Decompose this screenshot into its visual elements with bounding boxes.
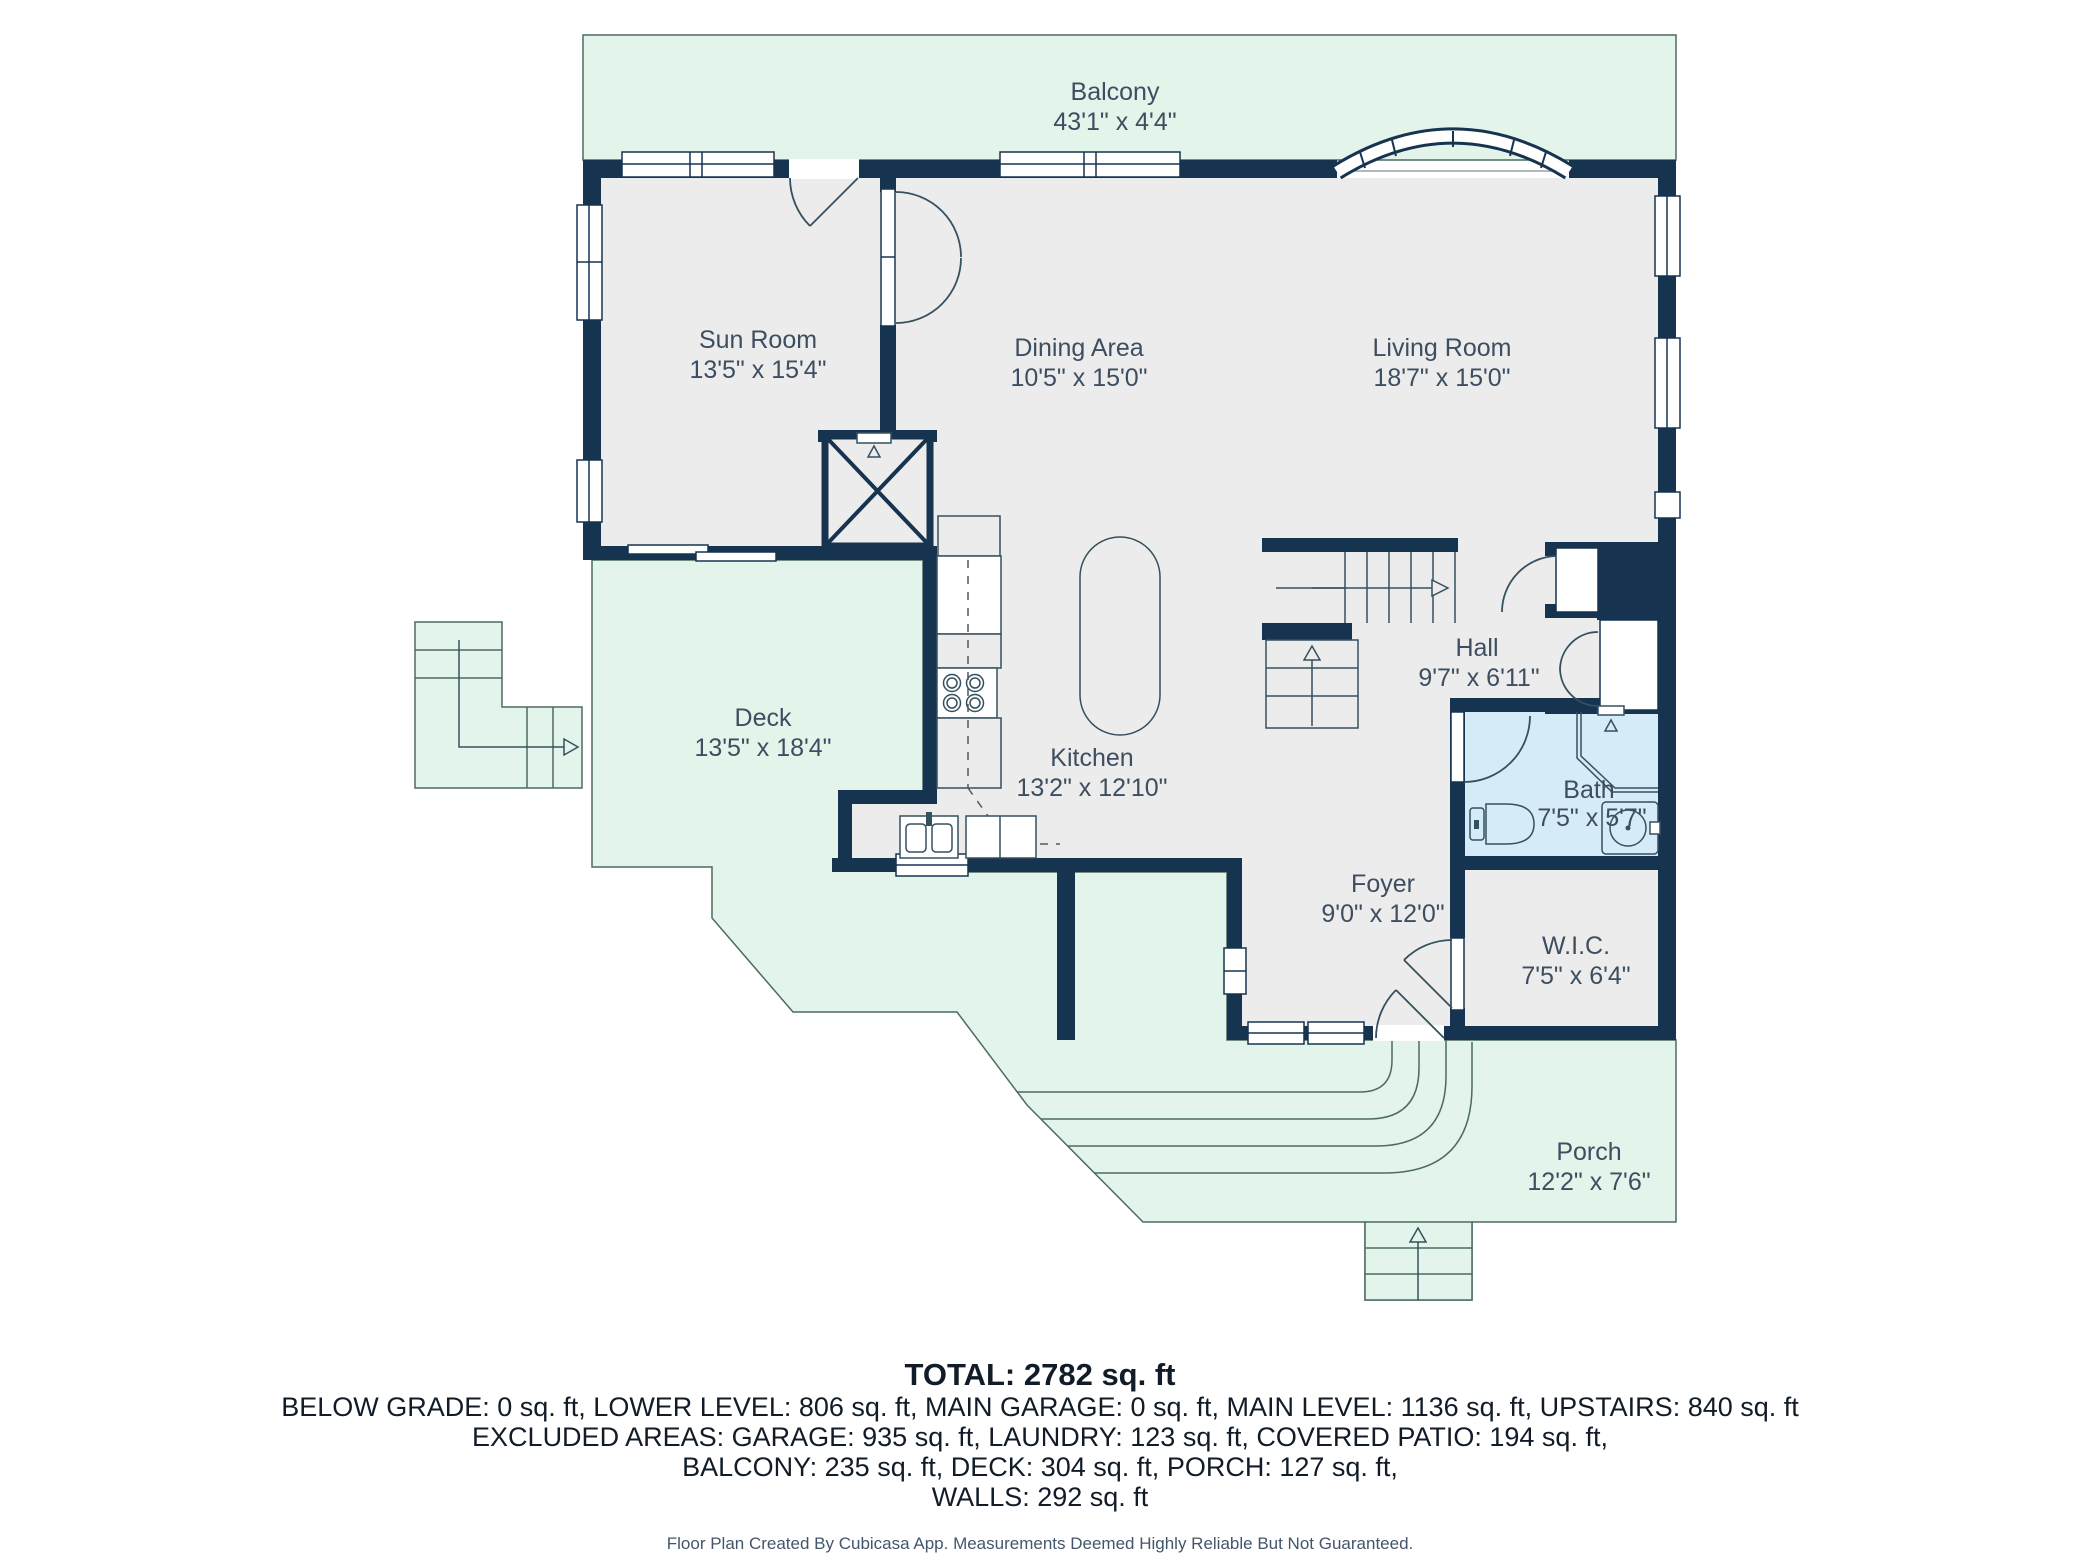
disclaimer-text: Floor Plan Created By Cubicasa App. Meas… bbox=[667, 1534, 1414, 1553]
window bbox=[622, 152, 774, 177]
area-summary: TOTAL: 2782 sq. ft BELOW GRADE: 0 sq. ft… bbox=[281, 1357, 1799, 1553]
room-label-foyer: Foyer bbox=[1351, 870, 1415, 898]
window bbox=[1655, 196, 1680, 276]
window bbox=[1655, 492, 1680, 518]
room-dims-living-room: 18'7" x 15'0" bbox=[1373, 364, 1510, 392]
room-dims-kitchen: 13'2" x 12'10" bbox=[1016, 774, 1167, 802]
window bbox=[1000, 152, 1180, 177]
room-dims-wic: 7'5" x 6'4" bbox=[1521, 962, 1630, 990]
window bbox=[577, 460, 602, 522]
toilet bbox=[1470, 804, 1534, 844]
room-label-wic: W.I.C. bbox=[1542, 932, 1610, 960]
balcony-door-gap bbox=[789, 159, 859, 179]
window bbox=[577, 205, 602, 320]
summary-line-outdoor: BALCONY: 235 sq. ft, DECK: 304 sq. ft, P… bbox=[682, 1452, 1398, 1482]
floor-plan-canvas: Balcony 43'1" x 4'4" Sun Room 13'5" x 15… bbox=[0, 0, 2080, 1560]
porch-steps bbox=[1365, 1222, 1472, 1300]
summary-line-walls: WALLS: 292 sq. ft bbox=[932, 1482, 1149, 1512]
window bbox=[1655, 338, 1680, 428]
closet-door-panel bbox=[1556, 548, 1598, 612]
room-dims-dining-area: 10'5" x 15'0" bbox=[1010, 364, 1147, 392]
summary-total: TOTAL: 2782 sq. ft bbox=[904, 1357, 1175, 1392]
closet-shelf bbox=[1600, 620, 1658, 710]
room-label-hall: Hall bbox=[1455, 634, 1498, 662]
room-label-kitchen: Kitchen bbox=[1050, 744, 1133, 772]
room-label-deck: Deck bbox=[735, 704, 792, 732]
window bbox=[1308, 1022, 1364, 1044]
stove bbox=[937, 668, 997, 718]
room-dims-foyer: 9'0" x 12'0" bbox=[1321, 900, 1444, 928]
summary-line-excluded: EXCLUDED AREAS: GARAGE: 935 sq. ft, LAUN… bbox=[472, 1422, 1608, 1452]
room-label-porch: Porch bbox=[1556, 1138, 1621, 1166]
room-dims-balcony: 43'1" x 4'4" bbox=[1053, 108, 1176, 136]
kitchen-sink bbox=[900, 812, 958, 858]
room-label-sun-room: Sun Room bbox=[699, 326, 817, 354]
window bbox=[1224, 948, 1246, 994]
room-dims-deck: 13'5" x 18'4" bbox=[694, 734, 831, 762]
window bbox=[1248, 1022, 1304, 1044]
room-label-balcony: Balcony bbox=[1071, 78, 1160, 106]
bath-door-panel bbox=[1451, 712, 1464, 782]
chimney-box bbox=[825, 433, 930, 546]
room-label-dining-area: Dining Area bbox=[1014, 334, 1143, 362]
floor-plan-page: Balcony 43'1" x 4'4" Sun Room 13'5" x 15… bbox=[0, 0, 2080, 1560]
kitchen-island bbox=[1080, 537, 1160, 735]
room-dims-sun-room: 13'5" x 15'4" bbox=[689, 356, 826, 384]
fridge bbox=[937, 556, 1001, 634]
wic-door-gap bbox=[1451, 938, 1464, 1010]
room-dims-bath: 7'5" x 5'7" bbox=[1537, 804, 1646, 832]
room-label-bath: Bath bbox=[1563, 776, 1614, 804]
summary-line-levels: BELOW GRADE: 0 sq. ft, LOWER LEVEL: 806 … bbox=[281, 1392, 1799, 1422]
room-label-living-room: Living Room bbox=[1373, 334, 1512, 362]
deck-stairs bbox=[415, 622, 582, 788]
room-dims-hall: 9'7" x 6'11" bbox=[1418, 664, 1539, 692]
room-dims-porch: 12'2" x 7'6" bbox=[1527, 1168, 1650, 1196]
